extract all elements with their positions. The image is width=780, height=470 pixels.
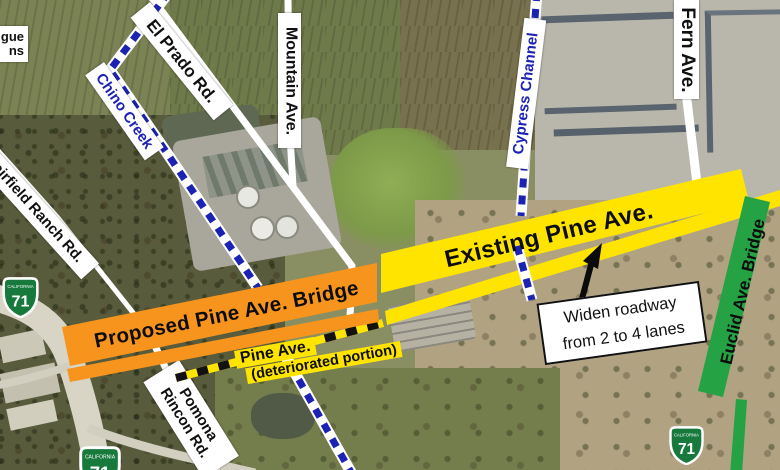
shield-route-text: 71 xyxy=(678,441,696,458)
widen-arrow-head xyxy=(583,243,602,269)
shield-route-text: 71 xyxy=(90,463,111,470)
route-71-shield-west: CALIFORNIA 71 xyxy=(2,277,39,318)
shield-state-text: CALIFORNIA xyxy=(7,284,33,289)
project-map: Chino Creek Cypress Channel El Prado Rd.… xyxy=(0,0,780,470)
route-71-shield-south: CALIFORNIA 71 xyxy=(79,446,121,470)
shield-route-text: 71 xyxy=(12,292,30,310)
edge-clipped-label: gue ns xyxy=(0,26,28,62)
route-71-shield-east: CALIFORNIA 71 xyxy=(669,426,704,465)
widen-arrow xyxy=(0,0,780,470)
shield-state-text: CALIFORNIA xyxy=(674,432,699,437)
shield-state-text: CALIFORNIA xyxy=(85,455,116,461)
